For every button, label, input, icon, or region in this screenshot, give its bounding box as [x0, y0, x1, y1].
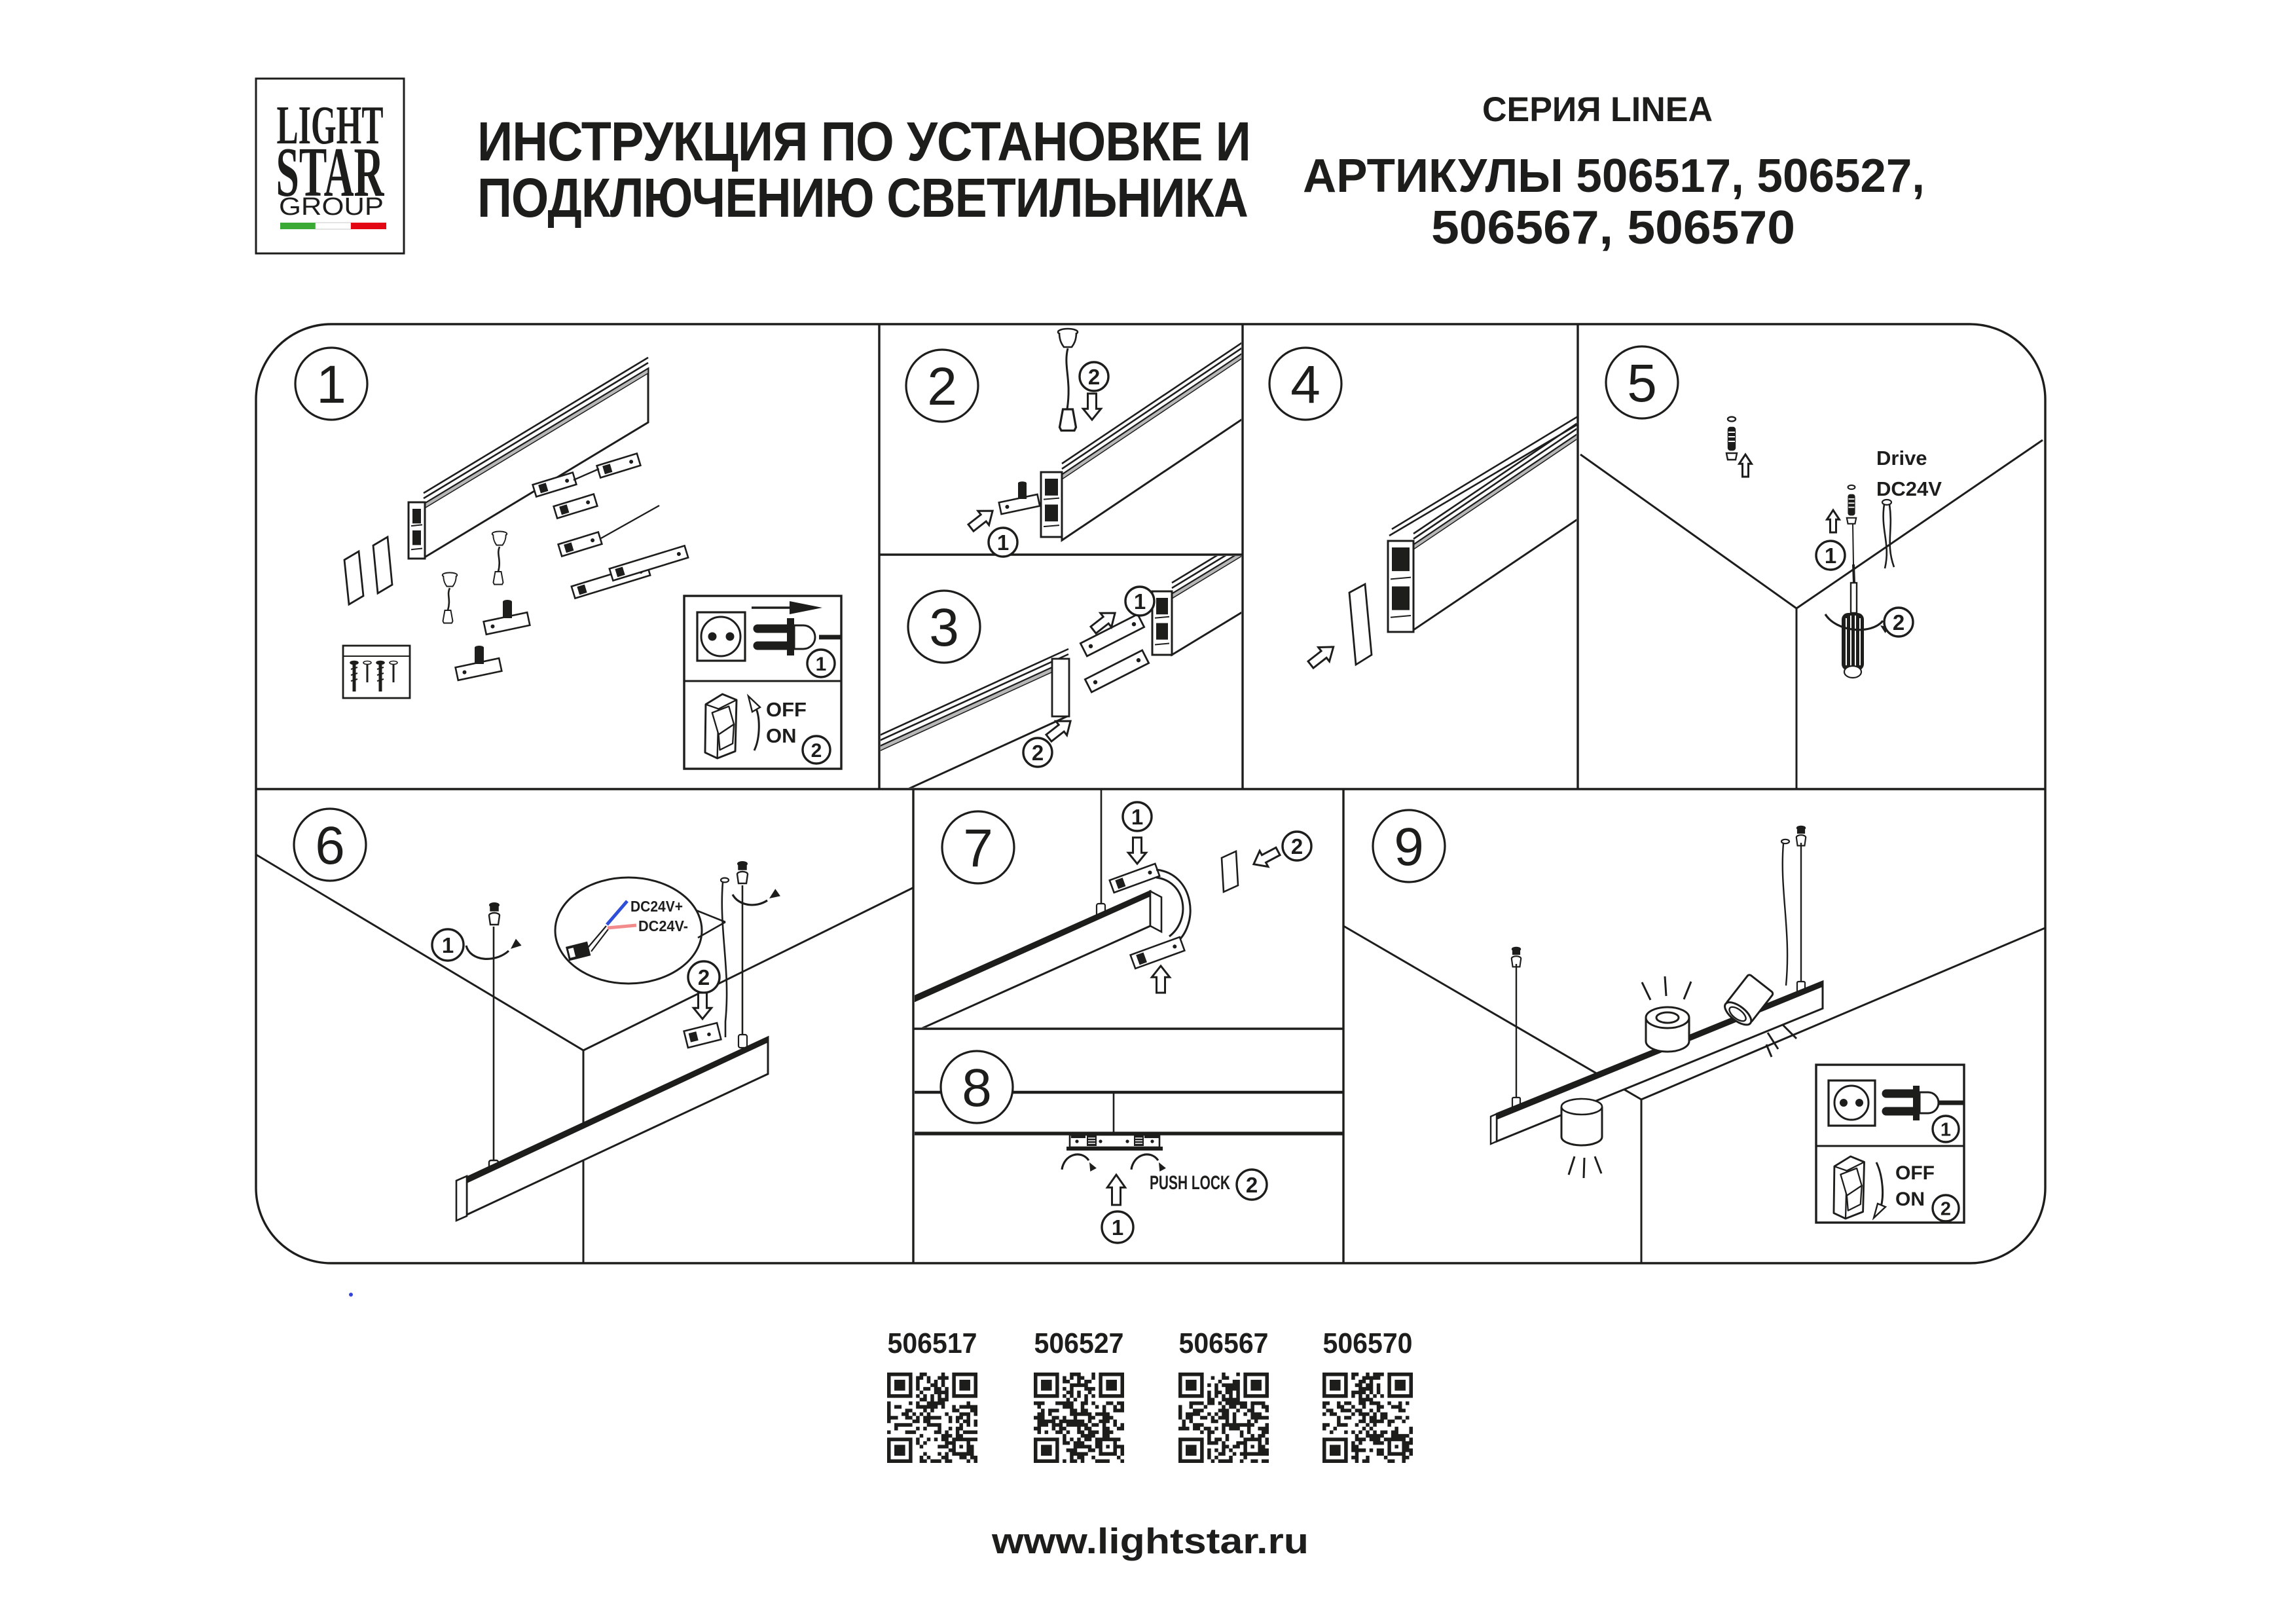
svg-text:506527: 506527 [1034, 1327, 1124, 1359]
svg-text:www.lightstar.ru: www.lightstar.ru [991, 1521, 1309, 1561]
svg-text:ПОДКЛЮЧЕНИЮ СВЕТИЛЬНИКА: ПОДКЛЮЧЕНИЮ СВЕТИЛЬНИКА [477, 167, 1248, 229]
svg-text:506517: 506517 [888, 1327, 977, 1359]
svg-text:2: 2 [927, 357, 957, 416]
svg-text:1: 1 [816, 654, 827, 675]
svg-text:2: 2 [1032, 741, 1044, 765]
svg-text:4: 4 [1290, 355, 1321, 415]
svg-text:6: 6 [315, 816, 345, 876]
svg-text:PUSH LOCK: PUSH LOCK [1150, 1172, 1230, 1194]
svg-text:2: 2 [698, 965, 710, 989]
svg-text:9: 9 [1394, 817, 1424, 877]
svg-text:АРТИКУЛЫ 506517, 506527,: АРТИКУЛЫ 506517, 506527, [1303, 150, 1925, 202]
svg-text:Drive: Drive [1876, 447, 1927, 470]
svg-text:2: 2 [1246, 1173, 1258, 1197]
svg-text:ON: ON [766, 724, 797, 747]
svg-text:8: 8 [962, 1058, 992, 1118]
svg-text:7: 7 [963, 819, 993, 878]
svg-text:506567, 506570: 506567, 506570 [1431, 202, 1795, 254]
svg-text:ИНСТРУКЦИЯ ПО УСТАНОВКЕ И: ИНСТРУКЦИЯ ПО УСТАНОВКЕ И [477, 111, 1250, 172]
svg-text:1: 1 [442, 933, 454, 957]
svg-text:1: 1 [1941, 1119, 1951, 1140]
svg-text:2: 2 [1088, 365, 1100, 389]
svg-text:2: 2 [1291, 834, 1303, 858]
svg-text:506570: 506570 [1323, 1327, 1413, 1359]
svg-text:1: 1 [997, 530, 1009, 555]
svg-text:1: 1 [316, 355, 346, 415]
svg-text:2: 2 [1893, 610, 1904, 635]
svg-text:1: 1 [1134, 589, 1146, 614]
svg-text:3: 3 [929, 598, 959, 657]
svg-text:СЕРИЯ LINEA: СЕРИЯ LINEA [1482, 90, 1713, 129]
svg-text:OFF: OFF [766, 698, 807, 721]
svg-text:1: 1 [1825, 544, 1836, 568]
svg-text:GROUP: GROUP [279, 193, 384, 221]
svg-text:DC24V-: DC24V- [638, 917, 688, 934]
svg-text:2: 2 [811, 740, 822, 762]
svg-text:5: 5 [1627, 354, 1657, 413]
svg-text:506567: 506567 [1179, 1327, 1269, 1359]
svg-text:DC24V+: DC24V+ [630, 898, 683, 915]
svg-text:DC24V: DC24V [1876, 477, 1942, 500]
svg-text:ON: ON [1895, 1189, 1925, 1210]
svg-text:1: 1 [1131, 805, 1143, 829]
svg-text:OFF: OFF [1895, 1162, 1935, 1184]
svg-text:1: 1 [1112, 1215, 1123, 1240]
svg-text:2: 2 [1941, 1198, 1951, 1219]
